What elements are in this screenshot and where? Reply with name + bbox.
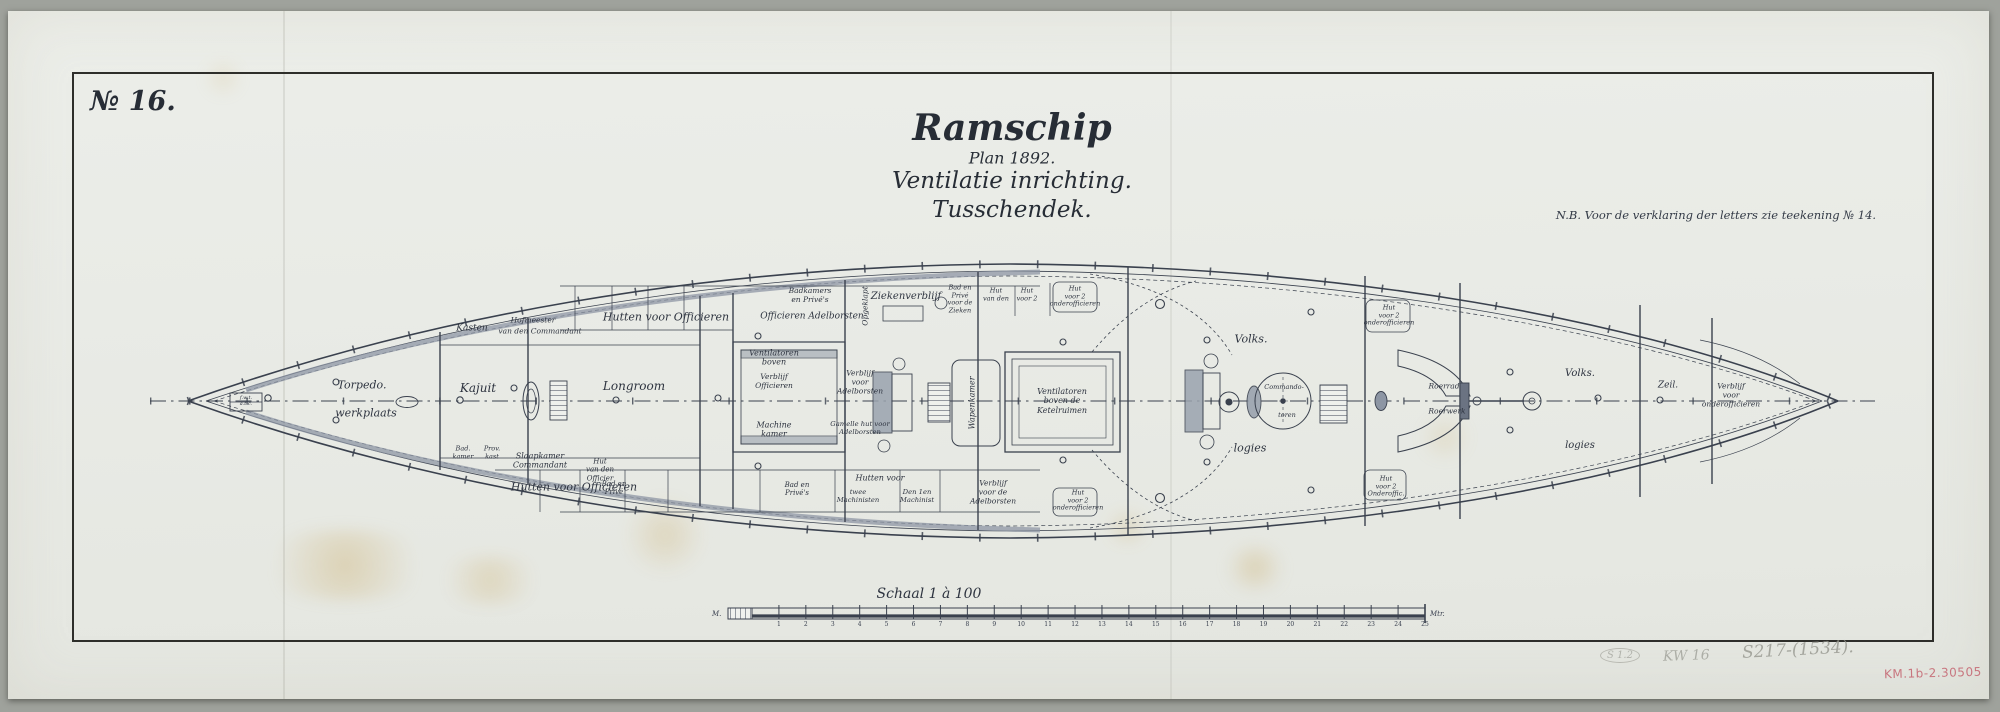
ruler-number: 19 — [1260, 621, 1268, 628]
ruler-number: 4 — [858, 621, 862, 628]
ruler-number: 22 — [1340, 621, 1348, 628]
ruler-number: 12 — [1071, 621, 1079, 628]
ruler-number: 20 — [1287, 621, 1295, 628]
ruler-number: 16 — [1179, 621, 1187, 628]
ruler-number: 15 — [1152, 621, 1160, 628]
ruler-number: 18 — [1233, 621, 1241, 628]
ruler-number: 9 — [992, 621, 996, 628]
ruler-number: 13 — [1098, 621, 1106, 628]
ruler-number: 2 — [804, 621, 808, 628]
ruler-number: 5 — [885, 621, 889, 628]
pencil-circled-mark: S 1.2 — [1600, 650, 1640, 661]
scale-unit-right: Mtr. — [1430, 610, 1445, 618]
ruler-number: 21 — [1313, 621, 1321, 628]
ruler-number: 10 — [1017, 621, 1025, 628]
ruler-number: 8 — [965, 621, 969, 628]
archive-ink-stamp: KM.1b-2.30505 — [1884, 665, 1982, 682]
pencil-mark-1: KW 16 — [1663, 647, 1710, 665]
ruler-number: 25 — [1421, 621, 1429, 628]
ruler-number: 7 — [939, 621, 943, 628]
ruler-number: 11 — [1044, 621, 1052, 628]
photographed-ship-plan: № 16. Ramschip Plan 1892. Ventilatie inr… — [0, 0, 2000, 712]
scale-unit-left: M. — [712, 610, 721, 618]
scale-ruler — [0, 0, 2000, 712]
ruler-number: 24 — [1394, 621, 1402, 628]
ruler-number: 14 — [1125, 621, 1133, 628]
ruler-number: 6 — [912, 621, 916, 628]
ruler-number: 3 — [831, 621, 835, 628]
ruler-number: 23 — [1367, 621, 1375, 628]
ruler-number: 17 — [1206, 621, 1214, 628]
ruler-number: 1 — [777, 621, 781, 628]
